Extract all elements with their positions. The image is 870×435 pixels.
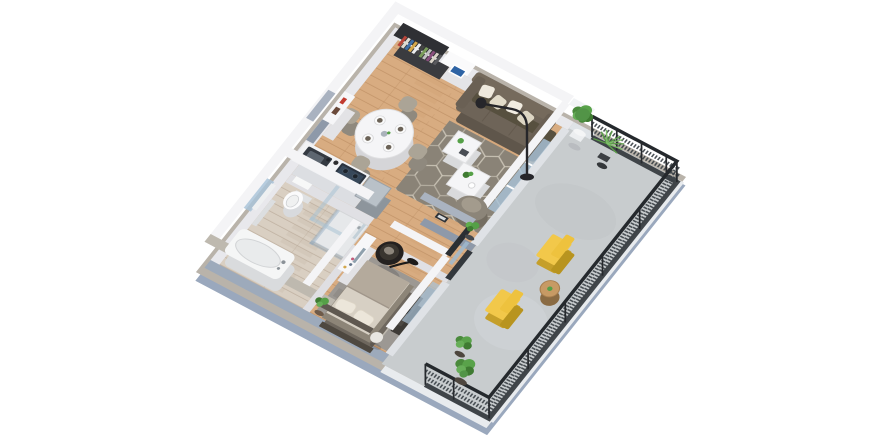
floorplan-stage [0,0,870,435]
floorplan-render [0,0,870,435]
